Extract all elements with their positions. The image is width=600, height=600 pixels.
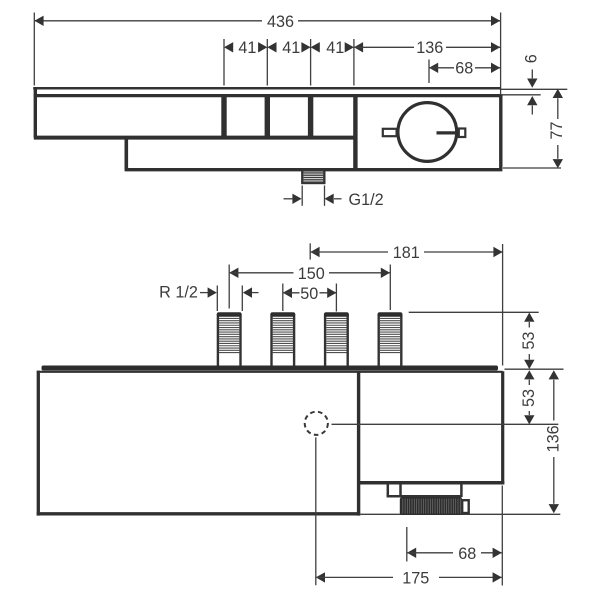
- svg-text:136: 136: [544, 425, 562, 452]
- svg-text:68: 68: [455, 60, 473, 78]
- svg-text:436: 436: [267, 13, 294, 31]
- svg-text:G1/2: G1/2: [349, 191, 384, 209]
- svg-text:68: 68: [458, 545, 476, 563]
- svg-text:41: 41: [238, 39, 256, 57]
- svg-text:6: 6: [523, 54, 541, 63]
- svg-text:41: 41: [282, 39, 300, 57]
- svg-text:41: 41: [326, 39, 344, 57]
- svg-text:53: 53: [520, 332, 538, 350]
- svg-text:150: 150: [298, 265, 325, 283]
- svg-text:136: 136: [416, 39, 443, 57]
- svg-text:175: 175: [402, 569, 429, 587]
- svg-text:50: 50: [300, 285, 318, 303]
- svg-text:R 1/2: R 1/2: [159, 284, 198, 302]
- svg-text:77: 77: [548, 122, 566, 140]
- svg-text:53: 53: [520, 389, 538, 407]
- svg-text:181: 181: [393, 244, 420, 262]
